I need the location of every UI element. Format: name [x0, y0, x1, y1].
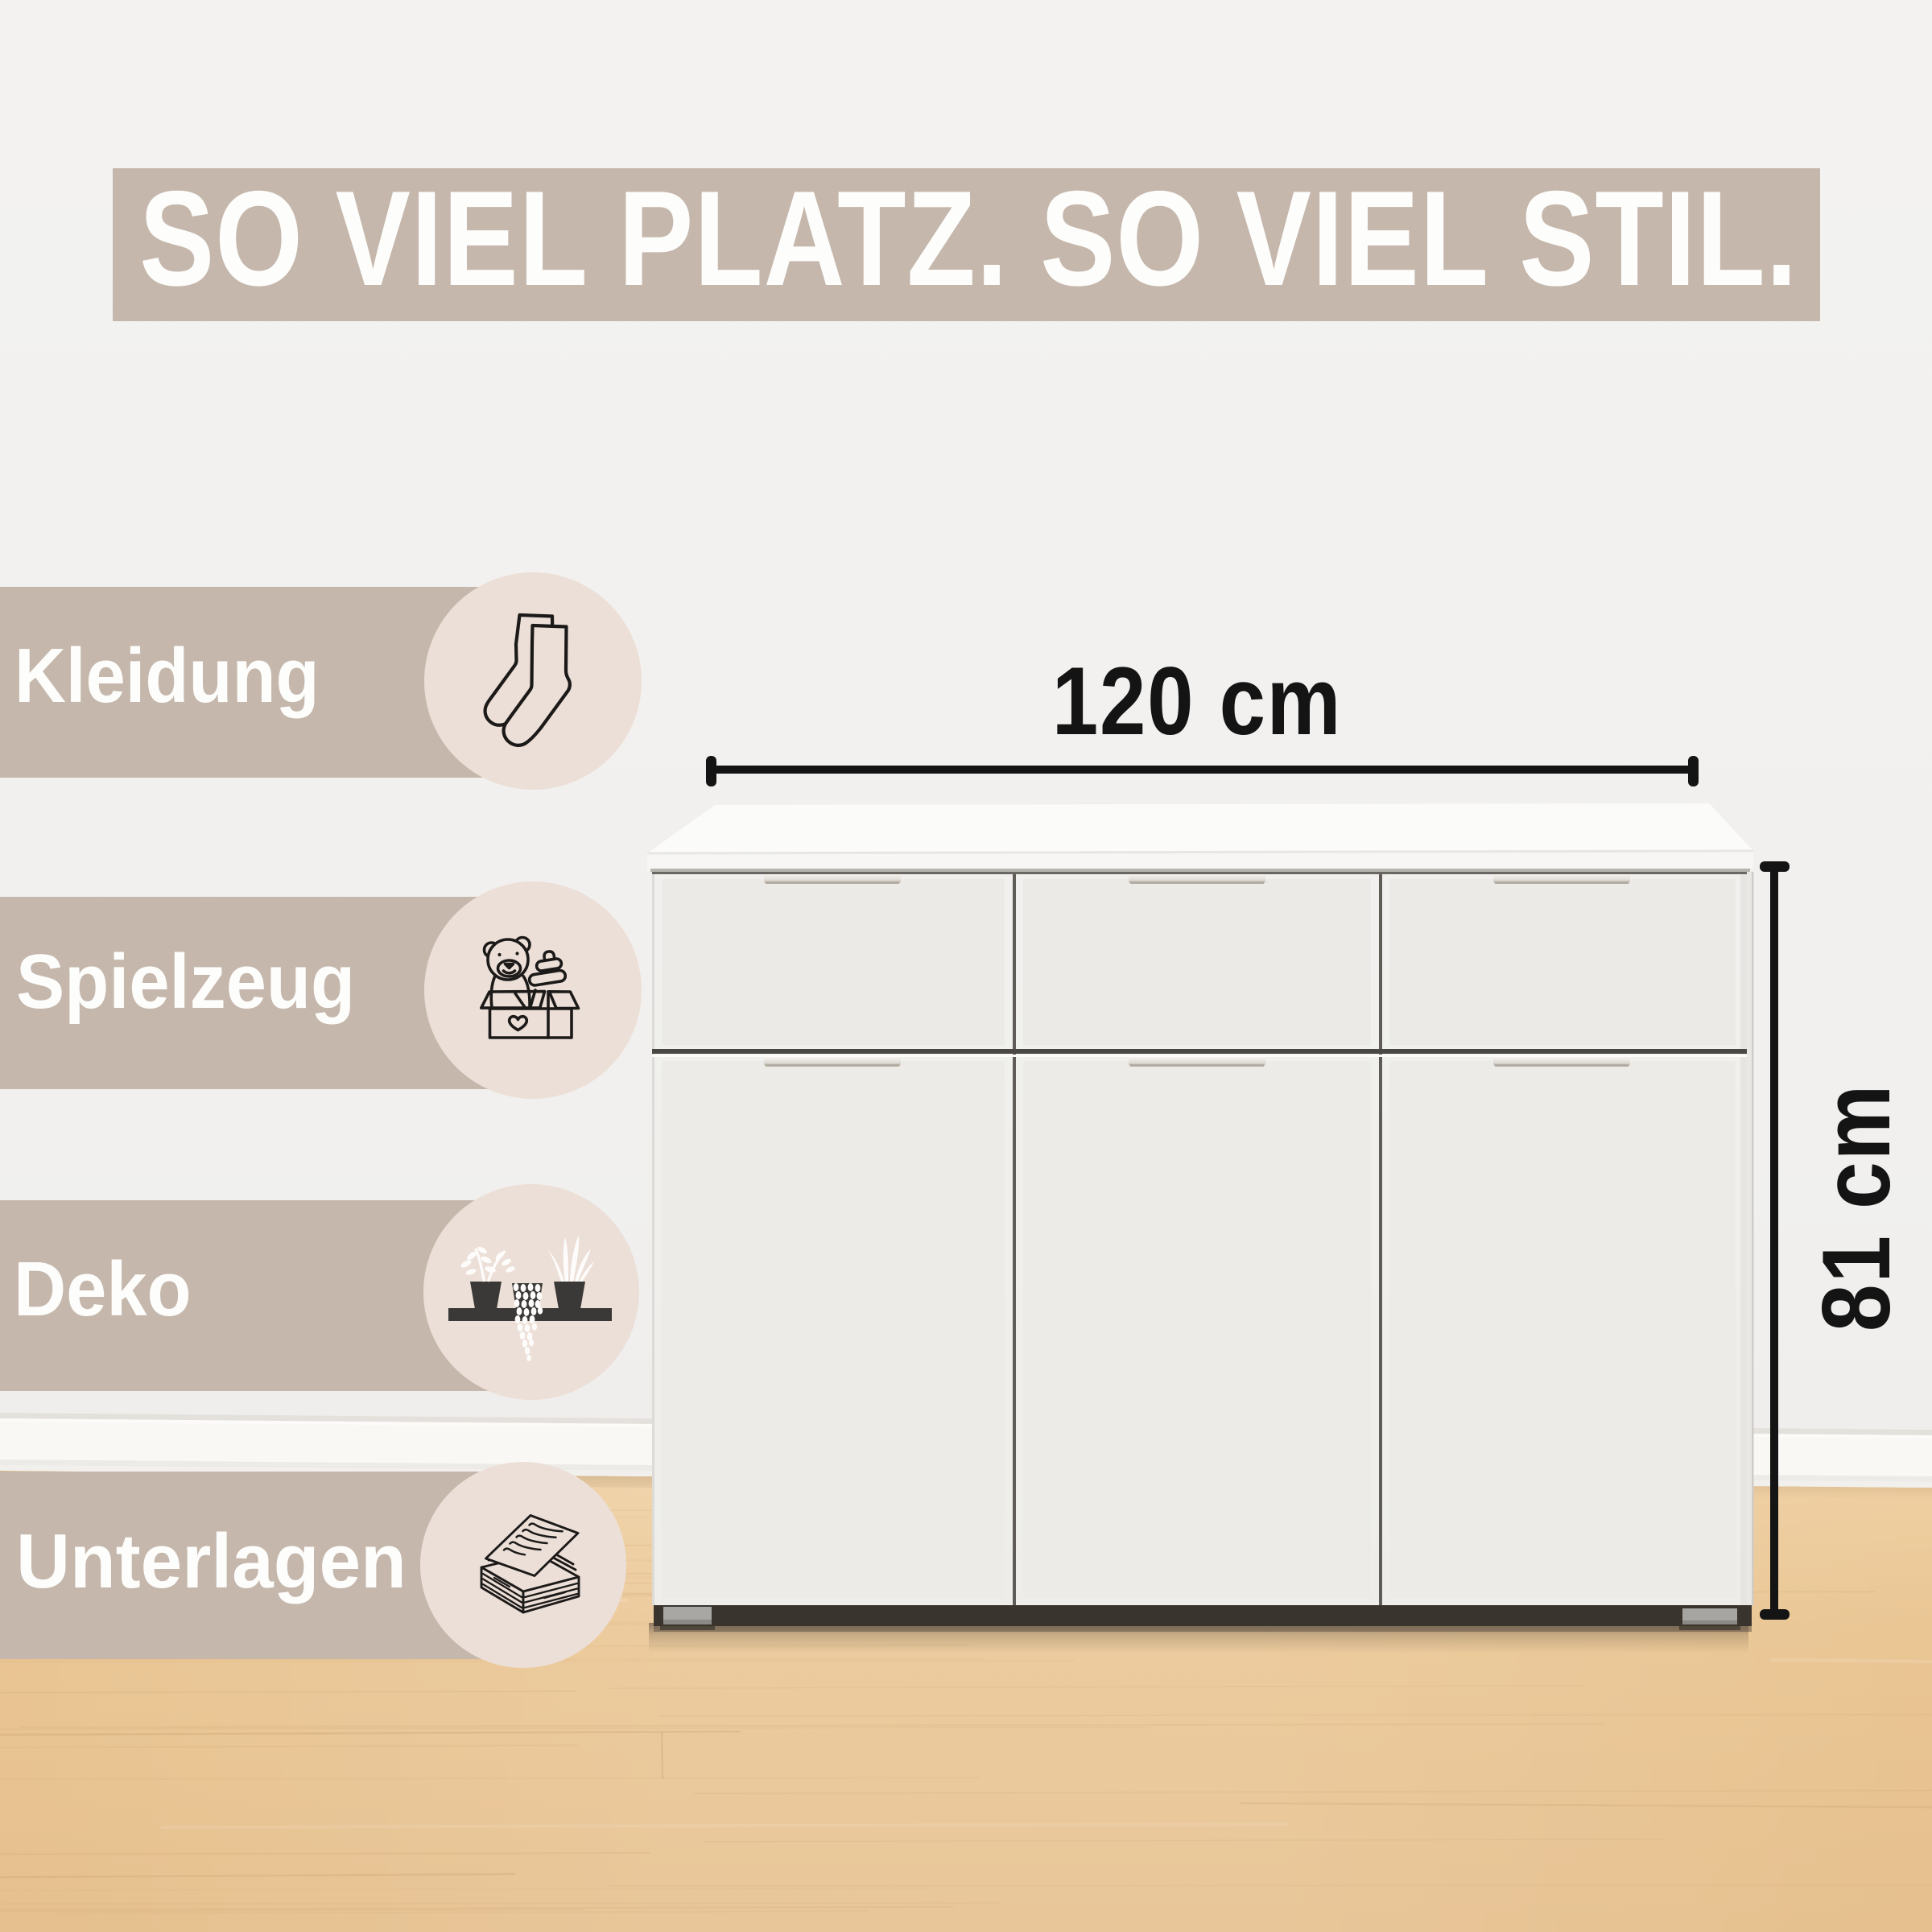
- svg-text:SO VIEL PLATZ. SO VIEL STIL.: SO VIEL PLATZ. SO VIEL STIL.: [139, 163, 1798, 314]
- svg-text:Spielzeug: Spielzeug: [16, 938, 355, 1024]
- svg-text:120 cm: 120 cm: [1052, 647, 1342, 755]
- svg-text:Unterlagen: Unterlagen: [16, 1519, 407, 1605]
- svg-text:81 cm: 81 cm: [1802, 1084, 1910, 1331]
- svg-text:Deko: Deko: [14, 1245, 192, 1331]
- svg-text:Kleidung: Kleidung: [14, 632, 320, 719]
